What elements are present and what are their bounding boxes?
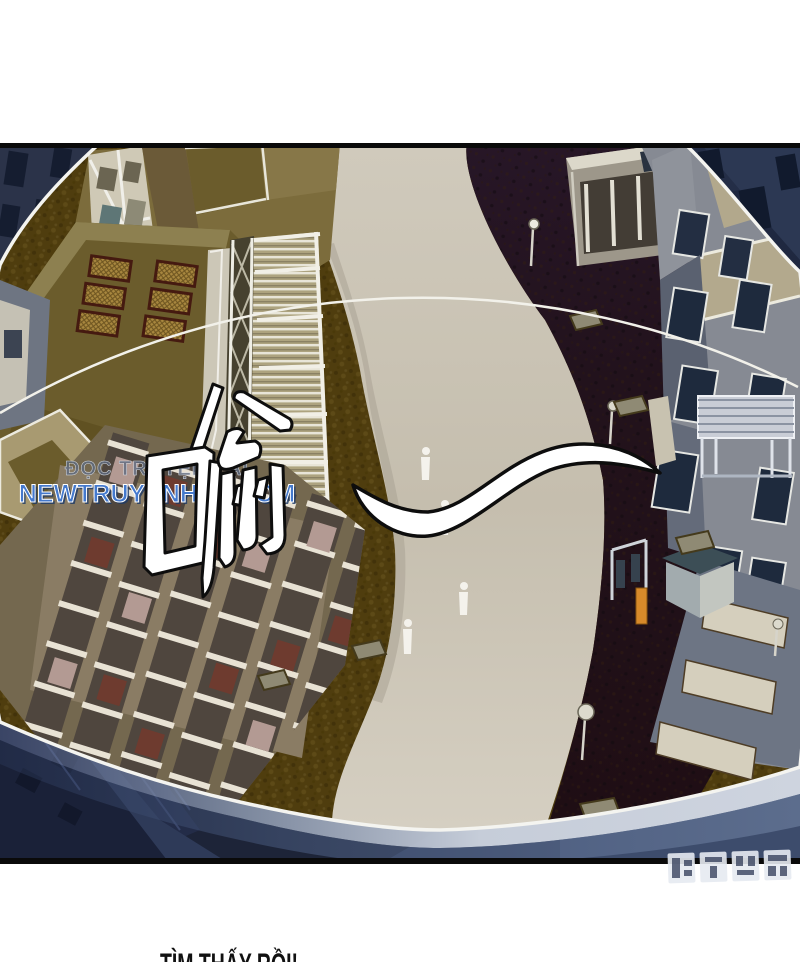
svg-text:TÌM THẤY RỒI!: TÌM THẤY RỒI! [160, 947, 298, 962]
